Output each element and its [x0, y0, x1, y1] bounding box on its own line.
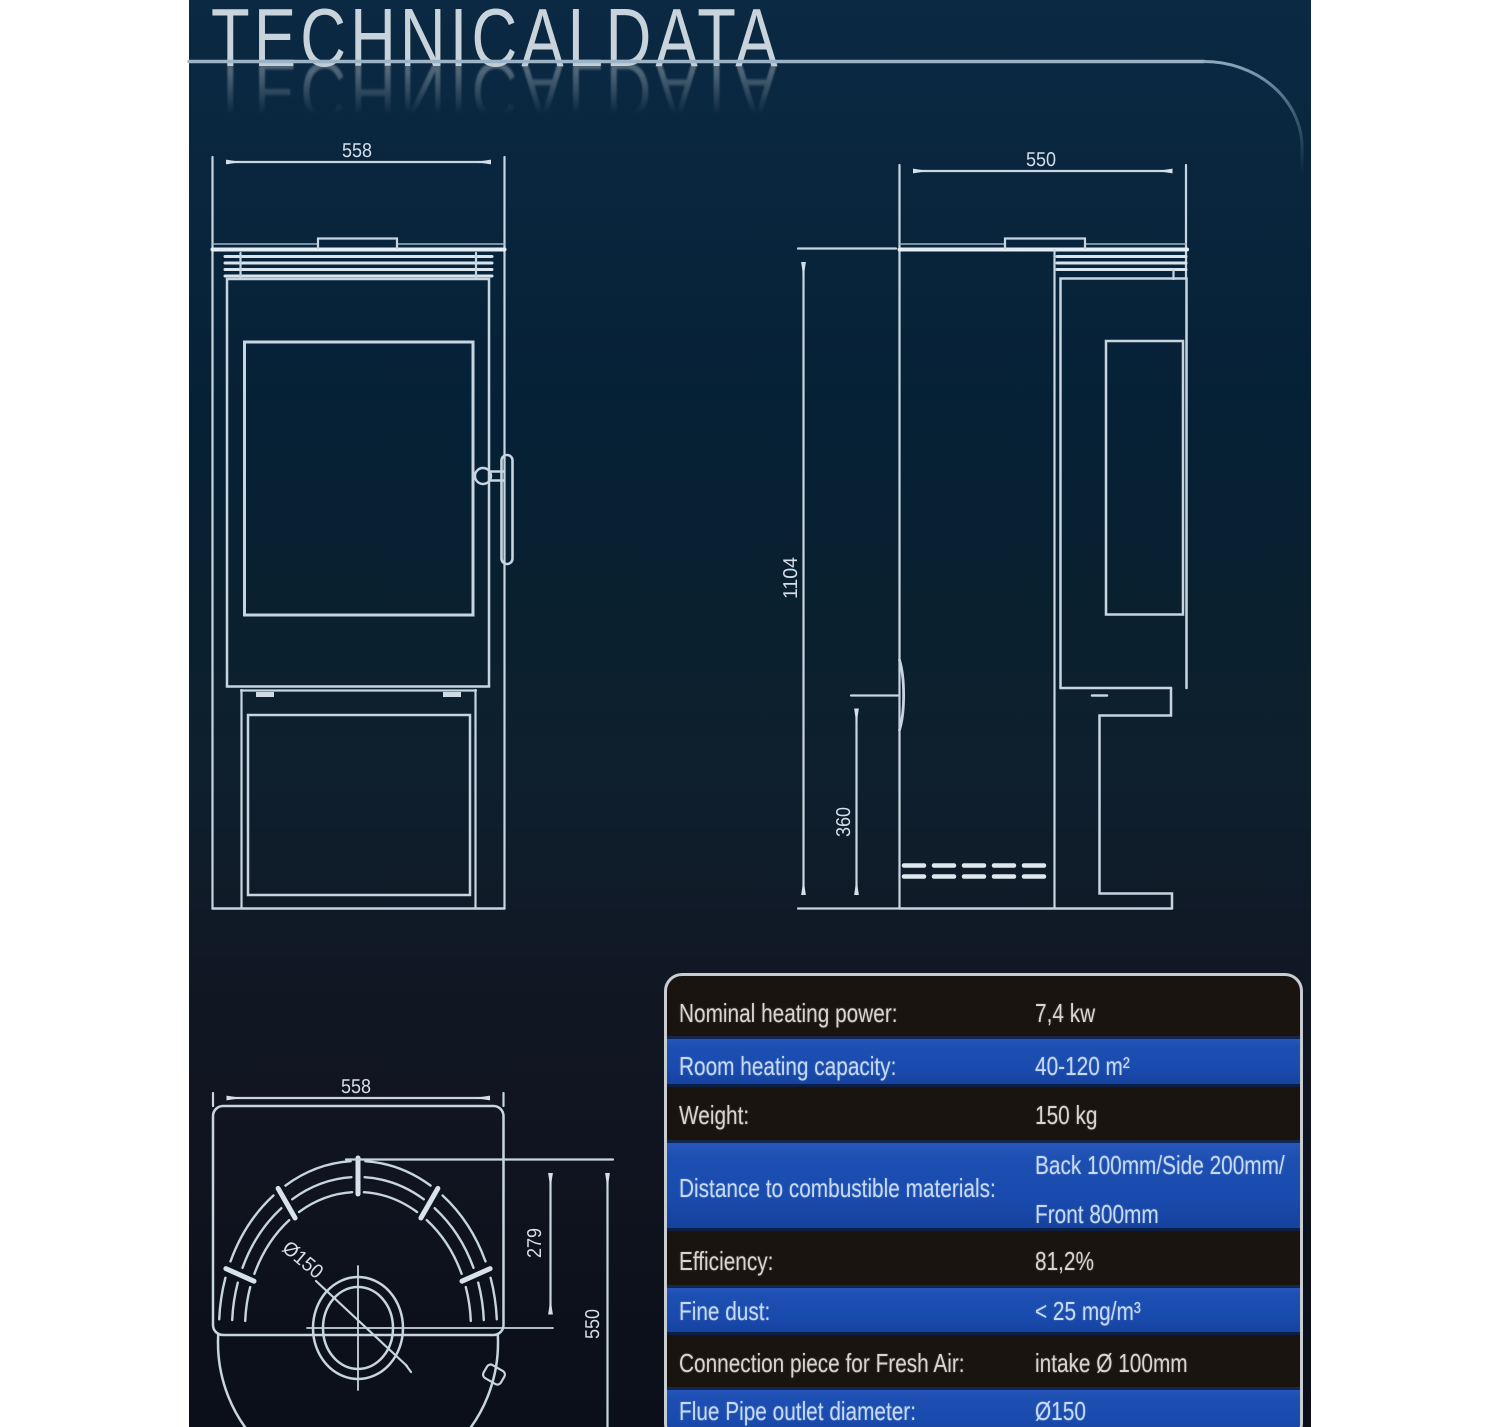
svg-text:550: 550 [1026, 149, 1056, 171]
svg-text:550: 550 [582, 1309, 604, 1339]
svg-text:1104: 1104 [780, 557, 802, 599]
svg-text:360: 360 [833, 807, 855, 837]
svg-text:Ø150: Ø150 [278, 1237, 327, 1283]
svg-text:279: 279 [524, 1228, 546, 1258]
svg-text:558: 558 [342, 140, 372, 162]
svg-text:558: 558 [341, 1076, 371, 1098]
